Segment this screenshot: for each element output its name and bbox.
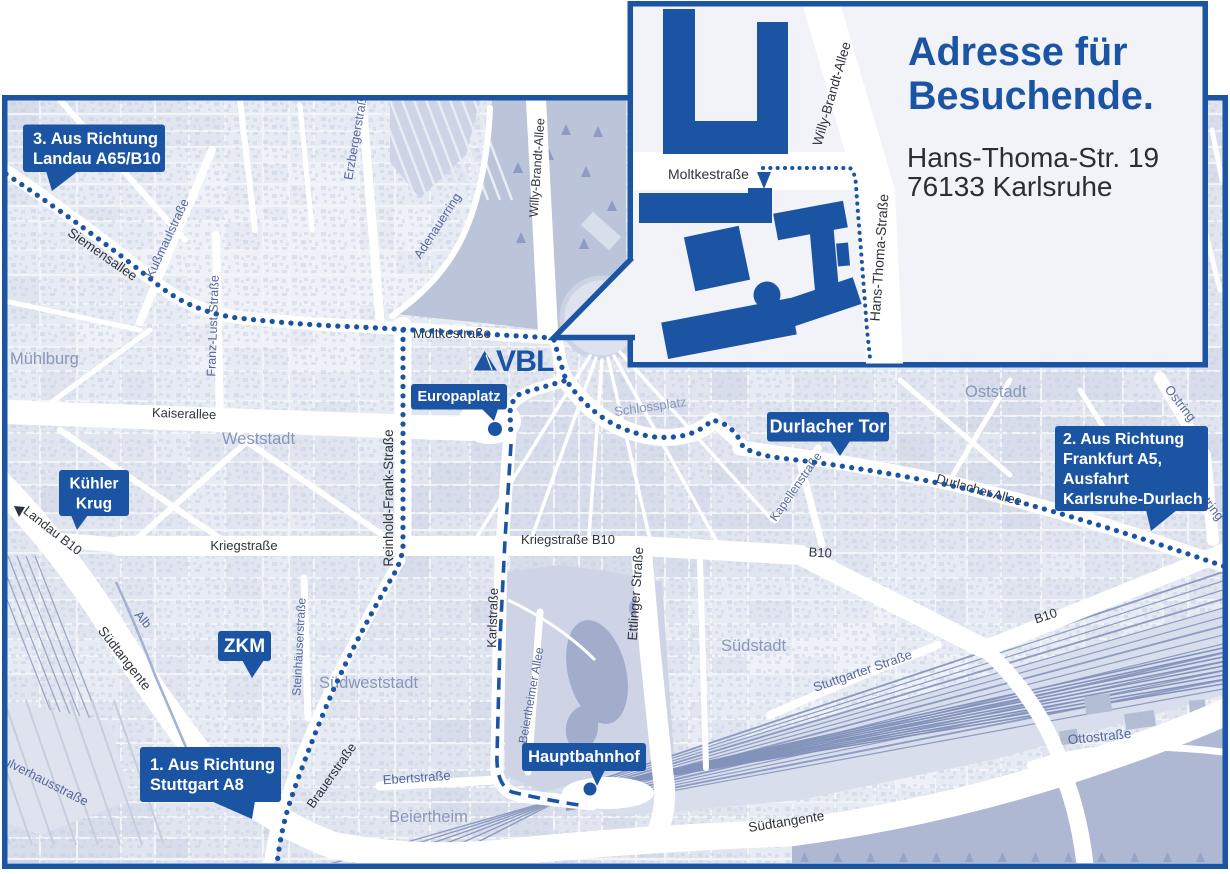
svg-text:Kriegstraße B10: Kriegstraße B10 (521, 532, 615, 547)
svg-text:Kühler: Kühler (69, 476, 118, 493)
svg-text:1. Aus Richtung: 1. Aus Richtung (150, 756, 275, 774)
svg-text:Hauptbahnhof: Hauptbahnhof (528, 748, 640, 766)
svg-text:Hans-Thoma-Str. 19: Hans-Thoma-Str. 19 (907, 142, 1159, 173)
svg-text:Moltkestraße: Moltkestraße (668, 166, 749, 182)
svg-text:Kriegstraße: Kriegstraße (210, 538, 277, 553)
svg-text:Landau A65/B10: Landau A65/B10 (33, 150, 161, 168)
svg-text:Frankfurt A5,: Frankfurt A5, (1063, 451, 1162, 468)
svg-text:3. Aus Richtung: 3. Aus Richtung (33, 130, 158, 148)
svg-text:Ausfahrt: Ausfahrt (1063, 471, 1129, 488)
svg-text:2. Aus Richtung: 2. Aus Richtung (1063, 431, 1184, 448)
svg-text:ZKM: ZKM (224, 636, 265, 657)
svg-text:VBL: VBL (496, 345, 554, 378)
svg-text:Adresse für: Adresse für (908, 30, 1128, 74)
svg-text:Krug: Krug (76, 496, 112, 513)
svg-text:Beiertheim: Beiertheim (389, 808, 468, 826)
svg-text:Besuchende.: Besuchende. (908, 74, 1154, 118)
svg-text:Stuttgart A8: Stuttgart A8 (150, 776, 244, 794)
svg-text:Europaplatz: Europaplatz (418, 389, 501, 405)
svg-text:76133 Karlsruhe: 76133 Karlsruhe (907, 171, 1112, 202)
svg-text:B10: B10 (808, 544, 832, 560)
svg-text:Weststadt: Weststadt (222, 430, 295, 448)
svg-text:Karlsruhe-Durlach: Karlsruhe-Durlach (1063, 491, 1203, 508)
svg-text:Südstadt: Südstadt (721, 637, 787, 655)
svg-text:Oststadt: Oststadt (965, 383, 1027, 401)
svg-text:Durlacher Tor: Durlacher Tor (770, 416, 887, 436)
svg-text:Mühlburg: Mühlburg (10, 350, 79, 368)
svg-text:Kaiserallee: Kaiserallee (152, 405, 217, 422)
svg-text:Reinhold-Frank-Straße: Reinhold-Frank-Straße (381, 429, 396, 566)
